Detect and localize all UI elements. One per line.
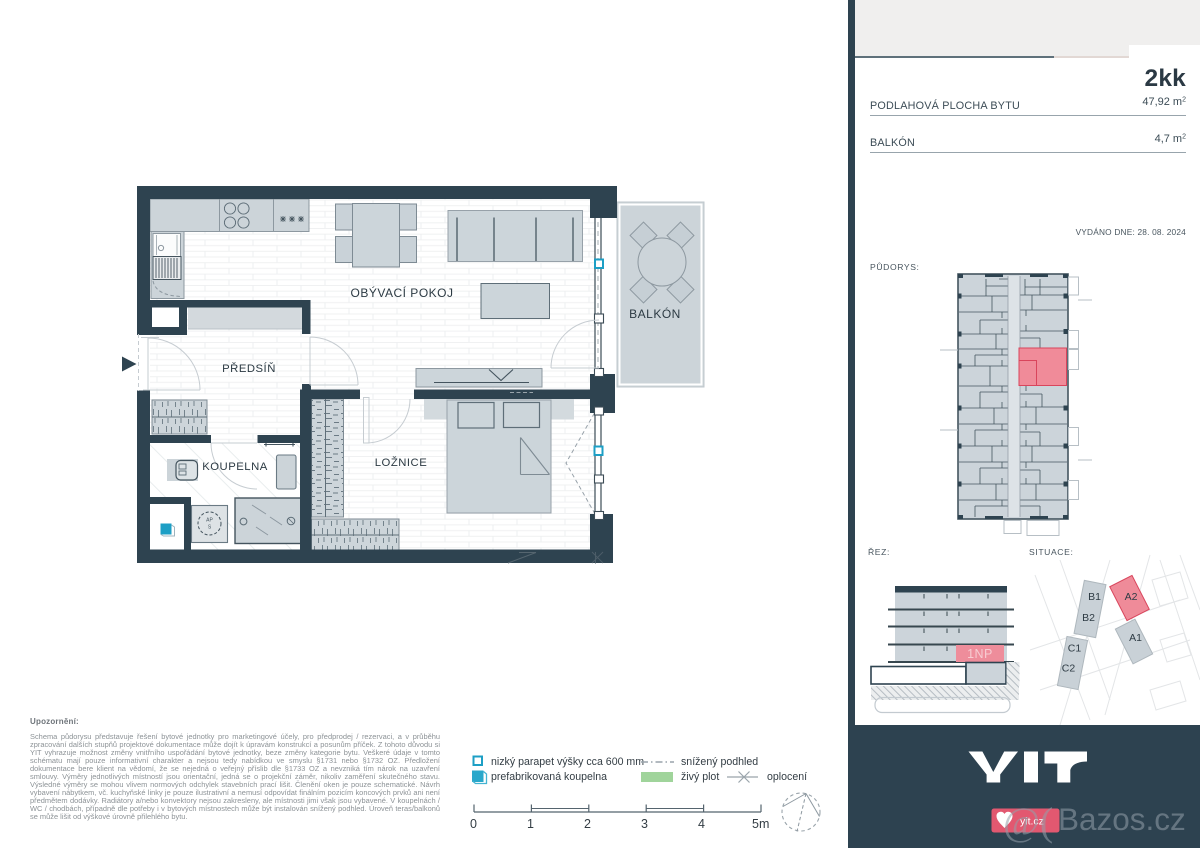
svg-text:1NP: 1NP <box>967 647 993 661</box>
svg-text:B1: B1 <box>1088 591 1101 603</box>
svg-text:0: 0 <box>470 817 477 831</box>
svg-text:C2: C2 <box>1062 663 1076 675</box>
svg-text:BALKÓN: BALKÓN <box>629 306 681 321</box>
svg-text:živý plot: živý plot <box>681 771 719 783</box>
svg-text:1: 1 <box>527 817 534 831</box>
svg-text:A1: A1 <box>1129 632 1142 644</box>
svg-text:KOUPELNA: KOUPELNA <box>202 461 268 473</box>
svg-text:OBÝVACÍ POKOJ: OBÝVACÍ POKOJ <box>351 285 454 300</box>
svg-text:4: 4 <box>698 817 705 831</box>
svg-text:oplocení: oplocení <box>767 771 807 783</box>
svg-text:3: 3 <box>641 817 648 831</box>
svg-text:C1: C1 <box>1068 643 1082 655</box>
svg-text:Bazos.cz: Bazos.cz <box>1058 801 1186 837</box>
svg-text:nizký parapet výšky cca 600 mm: nizký parapet výšky cca 600 mm <box>491 756 644 768</box>
svg-text:B2: B2 <box>1082 612 1095 624</box>
svg-text:2: 2 <box>584 817 591 831</box>
svg-text:prefabrikovaná koupelna: prefabrikovaná koupelna <box>491 771 607 783</box>
svg-text:snížený podhled: snížený podhled <box>681 756 758 768</box>
svg-text:PŘEDSÍŇ: PŘEDSÍŇ <box>222 362 276 375</box>
svg-text:AP: AP <box>206 518 213 524</box>
svg-text:LOŽNICE: LOŽNICE <box>375 456 427 469</box>
svg-text:A2: A2 <box>1125 591 1138 603</box>
svg-text:5m: 5m <box>752 817 769 831</box>
svg-text:@(: @( <box>1003 799 1053 844</box>
